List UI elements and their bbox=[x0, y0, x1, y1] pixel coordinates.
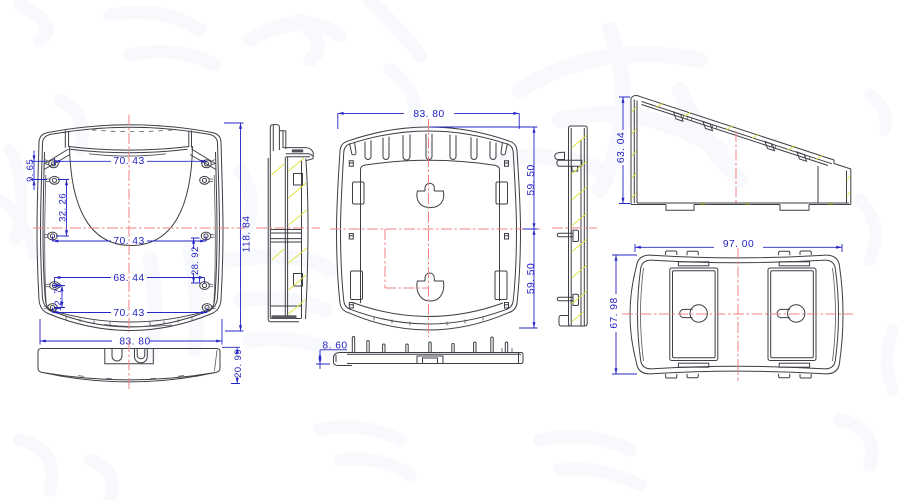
svg-text:118. 84: 118. 84 bbox=[242, 216, 253, 253]
svg-text:59. 50: 59. 50 bbox=[526, 263, 537, 294]
svg-text:83. 80: 83. 80 bbox=[119, 336, 150, 347]
svg-text:9. 65: 9. 65 bbox=[25, 159, 36, 182]
svg-text:32. 26: 32. 26 bbox=[58, 193, 69, 222]
svg-text:8. 60: 8. 60 bbox=[322, 340, 347, 351]
svg-text:83. 80: 83. 80 bbox=[413, 109, 444, 120]
svg-text:67. 98: 67. 98 bbox=[609, 297, 620, 328]
svg-text:97. 00: 97. 00 bbox=[723, 239, 754, 250]
svg-text:63. 04: 63. 04 bbox=[616, 132, 627, 163]
svg-text:20. 99: 20. 99 bbox=[233, 349, 244, 378]
svg-text:12. 78: 12. 78 bbox=[53, 283, 64, 312]
svg-text:59. 50: 59. 50 bbox=[526, 164, 537, 195]
svg-text:28. 92: 28. 92 bbox=[190, 246, 201, 275]
